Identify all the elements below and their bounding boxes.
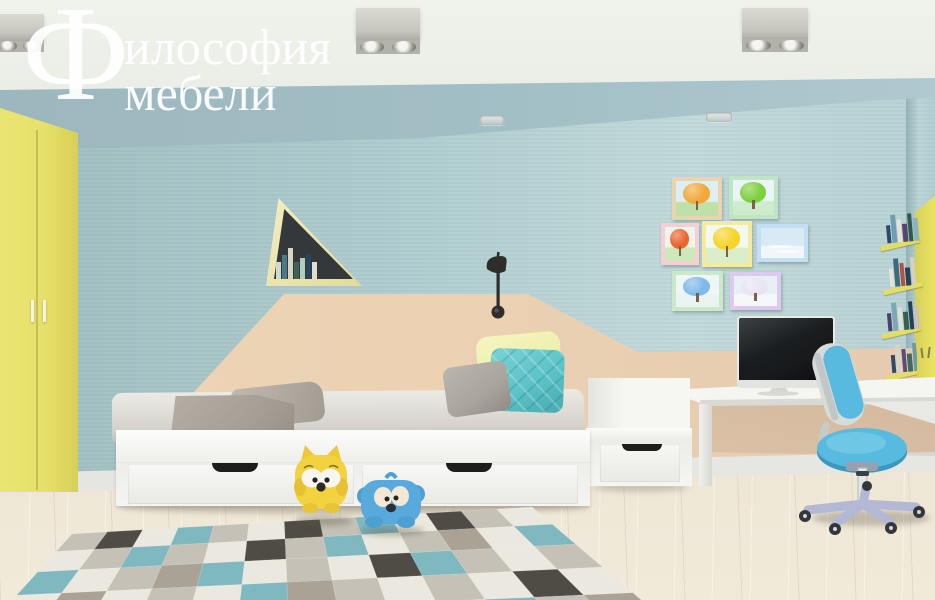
rug-square: [247, 522, 285, 542]
plush-toy-blue-koala: [356, 466, 426, 530]
rug-square: [209, 524, 249, 544]
rug-square: [197, 561, 245, 586]
rug-square: [0, 593, 62, 600]
desk-chair: [790, 340, 930, 535]
kids-room-render: Ф илософия мебели: [0, 0, 935, 600]
rug-square: [245, 539, 286, 561]
rug-square: [286, 557, 332, 582]
toy-shadow: [294, 516, 352, 526]
plush-toy-yellow-cat: [290, 443, 352, 515]
rug-square: [203, 541, 247, 563]
brand-logo-initial: Ф: [22, 0, 129, 122]
rug-square: [239, 582, 288, 600]
rug-square: [242, 559, 287, 584]
brand-logo-line2: мебели: [124, 68, 277, 118]
rug-square: [285, 537, 327, 559]
rug-square: [323, 535, 369, 557]
rug-square: [287, 580, 337, 600]
rug-square: [190, 585, 242, 600]
